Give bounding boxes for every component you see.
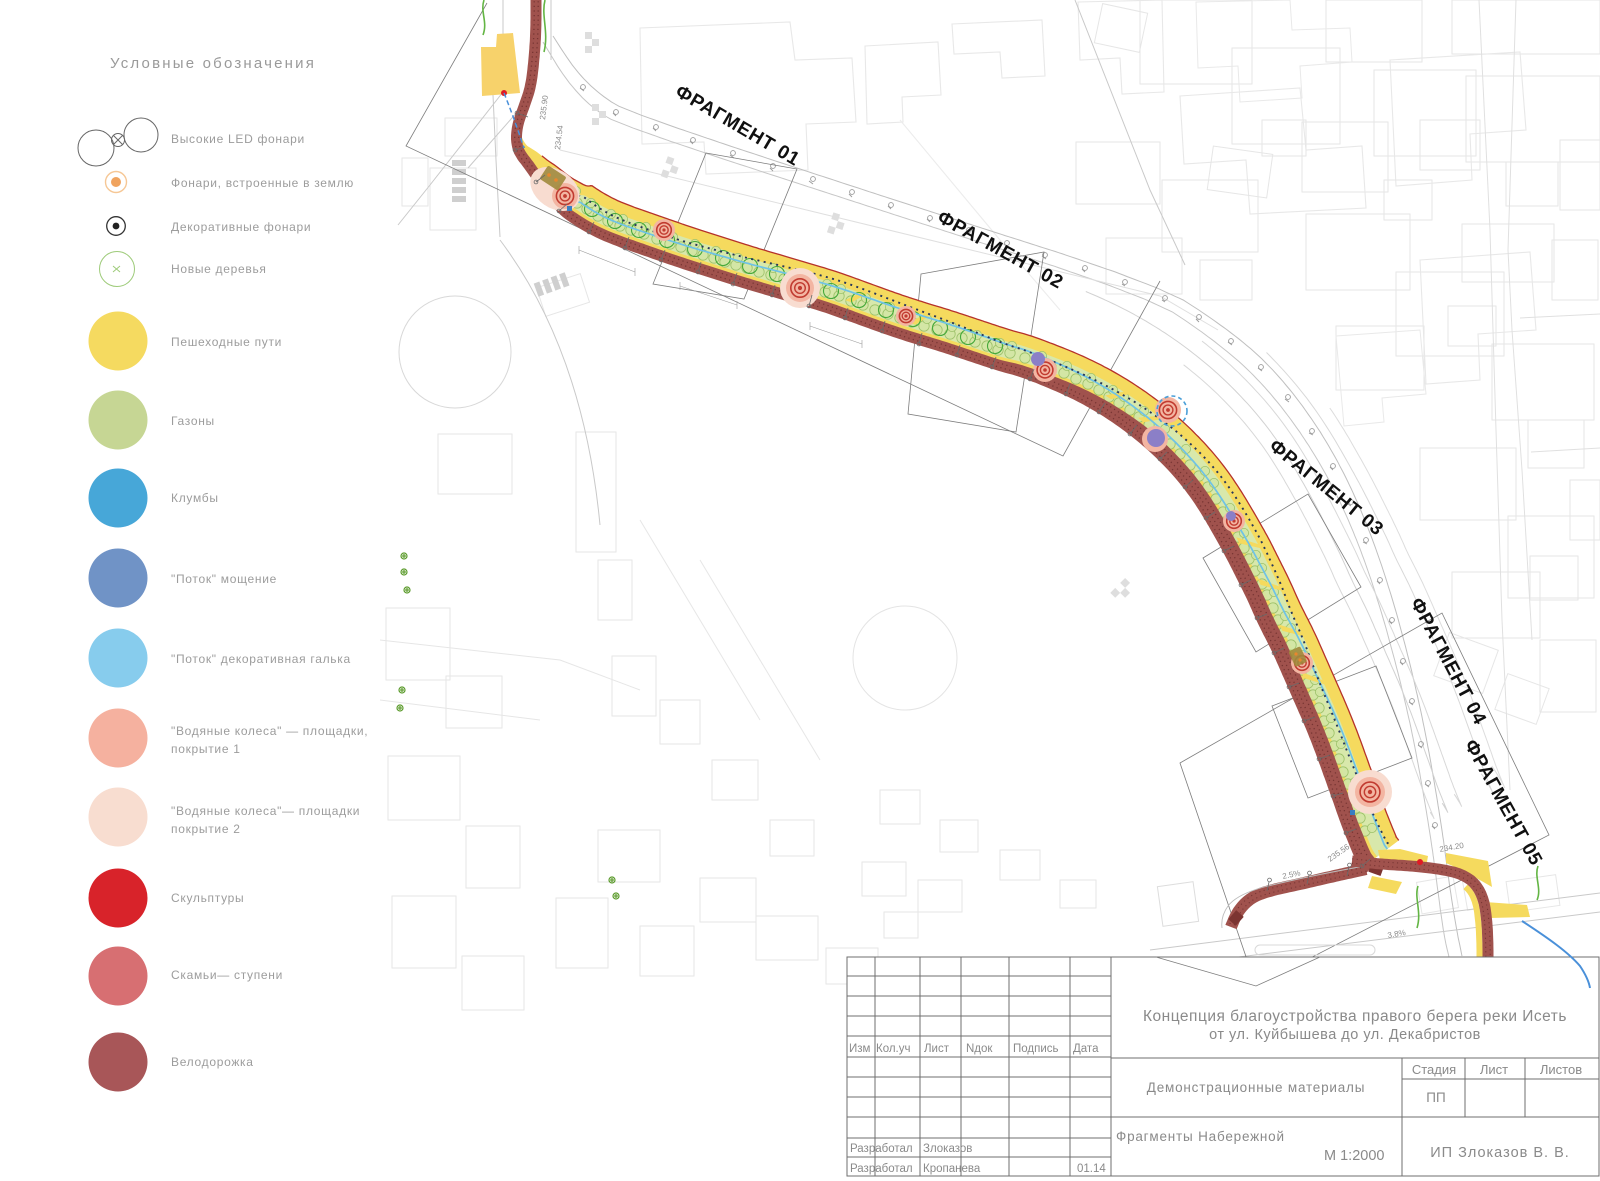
svg-text:Пешеходные пути: Пешеходные пути [171,335,282,349]
svg-text:Изм: Изм [849,1043,871,1055]
svg-text:Газоны: Газоны [171,414,215,428]
svg-text:Скамьи— ступени: Скамьи— ступени [171,968,283,982]
svg-text:"Водяные колеса"— площадки: "Водяные колеса"— площадки [171,804,360,818]
svg-text:Велодорожка: Велодорожка [171,1055,254,1069]
svg-text:Подпись: Подпись [1013,1043,1059,1055]
svg-text:Новые деревья: Новые деревья [171,262,267,276]
svg-text:Декоративные фонари: Декоративные фонари [171,220,311,234]
svg-text:покрытие 1: покрытие 1 [171,742,241,756]
svg-text:Демонстрационные материалы: Демонстрационные материалы [1147,1080,1365,1095]
svg-text:ИП Злоказов В. В.: ИП Злоказов В. В. [1430,1145,1570,1161]
svg-text:Разработал: Разработал [850,1143,913,1155]
svg-text:покрытие 2: покрытие 2 [171,822,241,836]
svg-text:Стадия: Стадия [1412,1062,1456,1077]
svg-text:Лист: Лист [1480,1062,1508,1077]
svg-text:ПП: ПП [1426,1090,1445,1105]
svg-text:Условные обозначения: Условные обозначения [110,55,316,72]
svg-text:М 1:2000: М 1:2000 [1324,1148,1384,1164]
svg-text:Концепция благоустройства прав: Концепция благоустройства правого берега… [1143,1008,1567,1025]
svg-text:Листов: Листов [1540,1062,1582,1077]
svg-text:"Поток" декоративная галька: "Поток" декоративная галька [171,652,351,666]
svg-text:Nдок: Nдок [966,1043,993,1055]
svg-text:"Водяные колеса" — площадки,: "Водяные колеса" — площадки, [171,724,368,738]
svg-text:Клумбы: Клумбы [171,491,219,505]
svg-text:"Поток" мощение: "Поток" мощение [171,572,277,586]
svg-text:Скульптуры: Скульптуры [171,891,244,905]
svg-text:Дата: Дата [1073,1043,1099,1055]
svg-text:Кропанева: Кропанева [923,1163,981,1175]
svg-text:Высокие LED фонари: Высокие LED фонари [171,132,305,146]
svg-text:от ул. Куйбышева до ул. Дека: от ул. Куйбышева до ул. Декабристов [1209,1027,1481,1043]
svg-text:Кол.уч: Кол.уч [876,1043,911,1055]
svg-text:01.14: 01.14 [1077,1163,1106,1175]
svg-text:Фрагменты Набережной: Фрагменты Набережной [1116,1129,1285,1144]
svg-text:Разработал: Разработал [850,1163,913,1175]
svg-text:Злоказов: Злоказов [923,1143,972,1155]
svg-text:Фонари, встроенные в землю: Фонари, встроенные в землю [171,176,354,190]
svg-text:Лист: Лист [924,1043,950,1055]
